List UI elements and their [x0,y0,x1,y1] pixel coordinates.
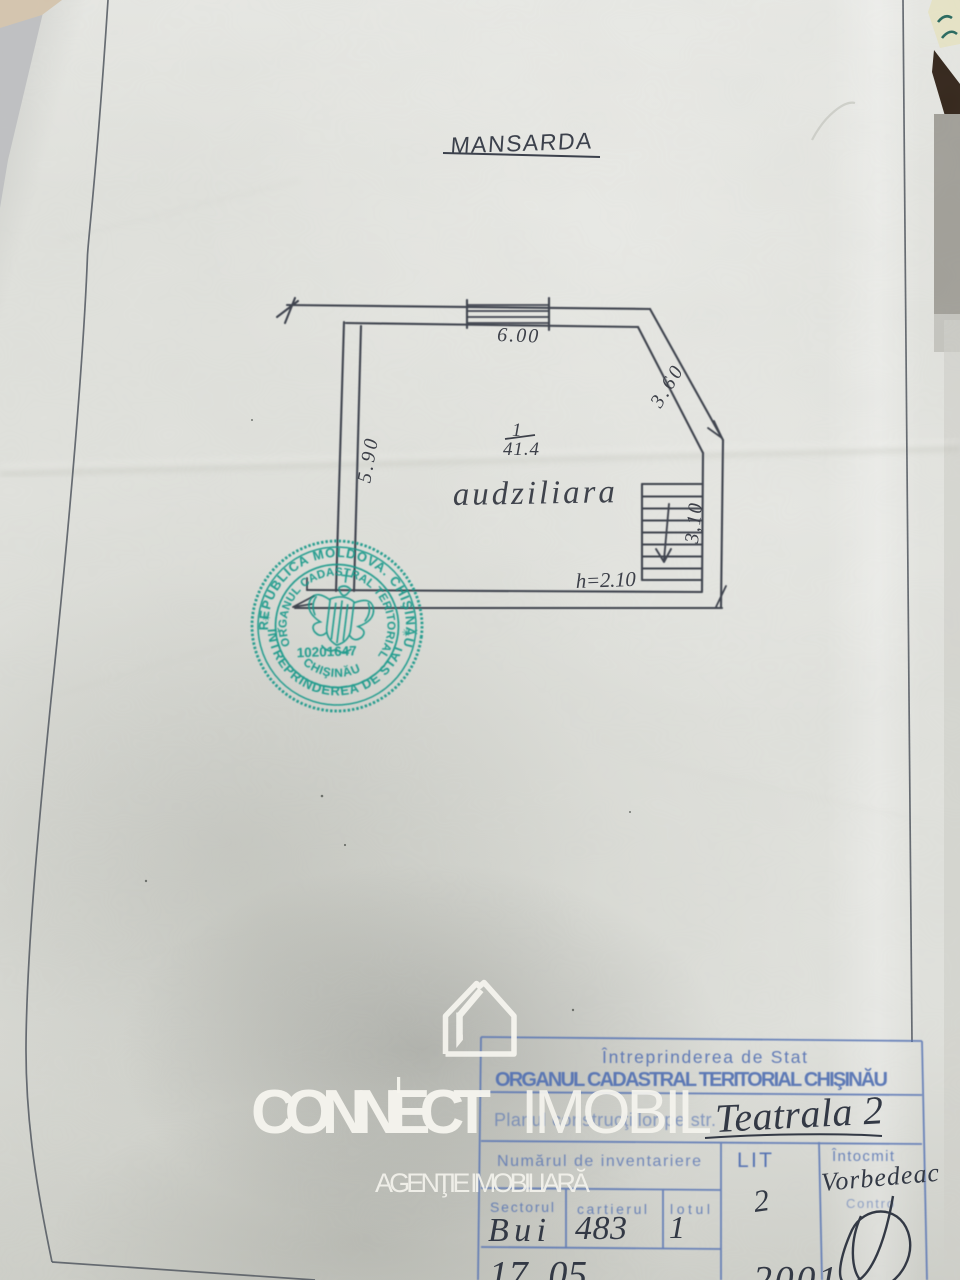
svg-text:AGENŢIE IMOBILIARĂ: AGENŢIE IMOBILIARĂ [375,1168,590,1198]
svg-text:Bui: Bui [488,1212,546,1249]
svg-text:CONNECT: CONNECT [251,1078,491,1147]
svg-text:41.4: 41.4 [503,439,540,460]
svg-text:483: 483 [575,1210,627,1247]
svg-text:3,10: 3,10 [681,502,707,545]
svg-text:✳: ✳ [401,627,412,640]
svg-text:17. 05: 17. 05 [489,1254,587,1280]
svg-text:Teatrala 2: Teatrala 2 [714,1087,884,1141]
svg-text:Întreprinderea de Stat: Întreprinderea de Stat [601,1047,807,1067]
svg-text:10201647: 10201647 [296,643,356,660]
svg-text:Contro: Contro [846,1196,894,1211]
svg-text:IMOBIL: IMOBIL [521,1078,712,1147]
svg-text:audziliara: audziliara [453,474,616,513]
svg-text:h=2.10: h=2.10 [575,567,636,593]
svg-text:6.00: 6.00 [497,324,539,347]
svg-text:1: 1 [669,1209,685,1245]
svg-text:LIT: LIT [737,1149,772,1172]
svg-text:✳: ✳ [261,612,272,625]
